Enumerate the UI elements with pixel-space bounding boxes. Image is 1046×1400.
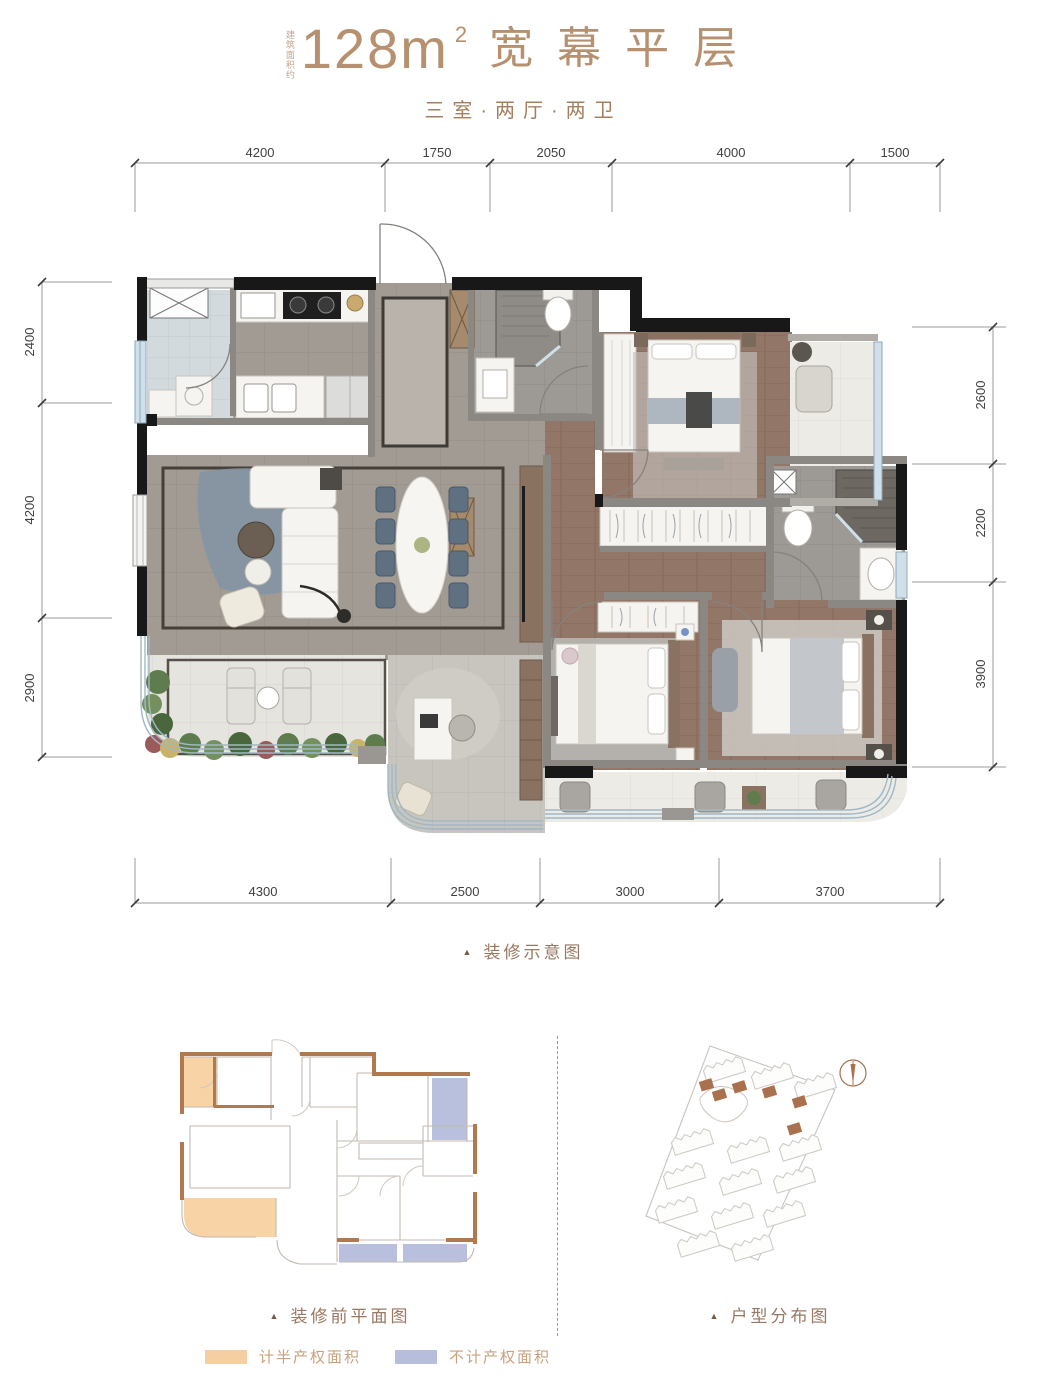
dim-bottom-2: 2500 (451, 884, 480, 899)
mullion (358, 746, 386, 764)
hall-floor (545, 420, 595, 600)
desk (414, 698, 452, 760)
tv (522, 486, 525, 622)
excluded-label: 不计产权面积 (449, 1346, 551, 1367)
dim-top-4: 4000 (717, 145, 746, 160)
balcony-armchair (560, 782, 590, 812)
balcony-armchair (816, 780, 846, 810)
excluded-swatch (395, 1350, 437, 1364)
site-plan-caption: ▲户型分布图 (620, 1302, 920, 1327)
main-floorplan: 4200 1750 2050 4000 1500 4300 2500 3000 … (0, 140, 1046, 920)
page-title: 建筑面积约 128m 2 宽幕平层 (0, 18, 1046, 84)
toilet-2 (784, 510, 812, 546)
bath2-window (896, 552, 907, 598)
master-headboard (862, 634, 874, 738)
balcony1-glazing (874, 342, 882, 500)
wardrobe-1 (604, 334, 636, 452)
laundry-top-window (140, 279, 234, 288)
nightstand (634, 333, 648, 347)
excluded-area-balcony2b (403, 1244, 467, 1262)
dim-bottom-4: 3700 (816, 884, 845, 899)
site-plan (610, 1028, 930, 1278)
closet (600, 506, 768, 546)
sofa-side (282, 508, 338, 618)
area-legend: 计半产权面积 不计产权面积 (205, 1346, 551, 1367)
toilet-1 (545, 297, 571, 331)
foyer-rug (383, 298, 447, 446)
corridor-closet (600, 506, 768, 546)
dim-left-2: 4200 (22, 496, 37, 525)
dim-left-1: 2400 (22, 328, 37, 357)
legend-item-half-property: 计半产权面积 (205, 1346, 361, 1367)
side-table (320, 468, 342, 490)
dim-top-3: 2050 (537, 145, 566, 160)
dim-left-3: 2900 (22, 674, 37, 703)
pre-decoration-plan (160, 1032, 510, 1284)
excluded-area-balcony1 (432, 1078, 467, 1140)
kettle (347, 295, 363, 311)
legend-item-excluded: 不计产权面积 (395, 1346, 551, 1367)
coffee-table (238, 522, 274, 558)
dimension-left: 2400 4200 2900 (22, 278, 112, 761)
terrace-table (257, 687, 279, 709)
half-property-label: 计半产权面积 (259, 1346, 361, 1367)
main-plan-caption-text: 装修示意图 (483, 943, 583, 962)
sun-lounger (283, 668, 311, 724)
site-plan-caption-text: 户型分布图 (730, 1307, 830, 1326)
area-exponent: 2 (455, 24, 467, 46)
washing-machine (176, 376, 212, 416)
header: 建筑面积约 128m 2 宽幕平层 三室·两厅·两卫 (0, 18, 1046, 123)
dim-top-2: 1750 (423, 145, 452, 160)
plush-toy (562, 648, 578, 664)
dim-bottom-1: 4300 (249, 884, 278, 899)
dim-top-5: 1500 (881, 145, 910, 160)
preplan-fills (184, 1057, 467, 1262)
triangle-marker-icon: ▲ (463, 947, 475, 957)
half-property-swatch (205, 1350, 247, 1364)
mullion (662, 808, 694, 820)
half-property-area-terrace (184, 1198, 276, 1237)
laundry-sink (149, 390, 176, 417)
balcony1-chair (796, 366, 832, 412)
dimension-top: 4200 1750 2050 4000 1500 (131, 145, 944, 212)
entry-door-arc (380, 224, 446, 284)
dim-right-2: 2200 (973, 509, 988, 538)
master-chaise (712, 648, 738, 712)
area-note: 建筑面积约 (285, 26, 295, 84)
bookshelf (520, 660, 542, 800)
nightstand (742, 333, 756, 347)
subtitle: 三室·两厅·两卫 (0, 94, 1046, 123)
coffee-table-small (245, 559, 271, 585)
dimension-right: 2600 2200 3900 (912, 323, 1006, 771)
laptop (420, 714, 438, 728)
living-window (133, 495, 147, 566)
main-plan-caption: ▲装修示意图 (0, 938, 1046, 963)
title-text: 宽幕平层 (489, 18, 761, 80)
pre-plan-caption-text: 装修前平面图 (290, 1307, 410, 1326)
section-divider (557, 1036, 558, 1336)
floorplan-page: 建筑面积约 128m 2 宽幕平层 三室·两厅·两卫 (0, 0, 1046, 1400)
dim-top-1: 4200 (246, 145, 275, 160)
balcony-armchair (695, 782, 725, 812)
dimension-bottom: 4300 2500 3000 3700 (131, 858, 944, 907)
dim-bottom-3: 3000 (616, 884, 645, 899)
plant-pot (792, 342, 812, 362)
north-arrow-icon (840, 1060, 866, 1086)
sun-lounger (227, 668, 255, 724)
bed2-headboard (668, 640, 680, 748)
kitchen-sink (241, 293, 275, 318)
excluded-area-balcony2a (339, 1244, 397, 1262)
desk-chair (449, 715, 475, 741)
bed1-bench (664, 458, 724, 470)
triangle-marker-icon: ▲ (270, 1311, 282, 1321)
triangle-marker-icon: ▲ (710, 1311, 722, 1321)
dim-right-3: 3900 (973, 660, 988, 689)
pre-plan-caption: ▲装修前平面图 (170, 1302, 510, 1327)
area-value: 128m (301, 18, 449, 80)
master-bedroom-furniture (712, 602, 892, 764)
dim-right-1: 2600 (973, 381, 988, 410)
